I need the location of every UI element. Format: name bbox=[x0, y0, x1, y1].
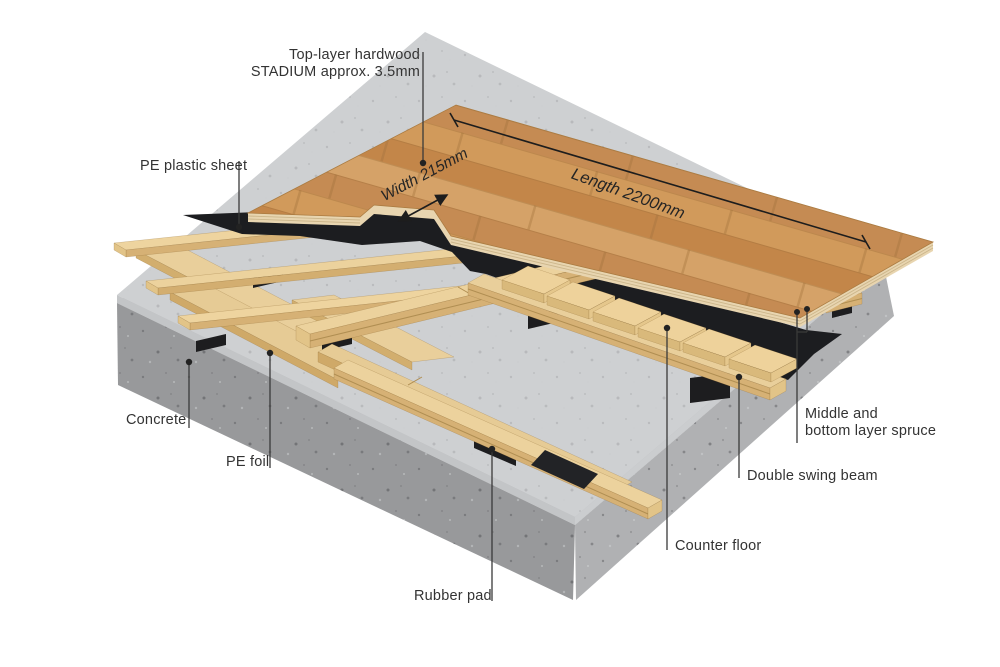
label-rubber-pad: Rubber pad bbox=[414, 588, 492, 605]
label-pe-foil: PE foil bbox=[226, 454, 269, 471]
label-counter-floor: Counter floor bbox=[675, 538, 761, 555]
label-double-swing-beam: Double swing beam bbox=[747, 468, 878, 485]
floor-construction-diagram: Top-layer hardwood STADIUM approx. 3.5mm… bbox=[0, 0, 1000, 667]
label-pe-plastic-sheet: PE plastic sheet bbox=[140, 158, 247, 175]
floor-construction-illustration bbox=[0, 0, 1000, 667]
label-concrete: Concrete bbox=[126, 412, 186, 429]
label-top-layer-hardwood: Top-layer hardwood STADIUM approx. 3.5mm bbox=[240, 47, 420, 81]
label-middle-bottom-spruce: Middle and bottom layer spruce bbox=[805, 406, 936, 440]
